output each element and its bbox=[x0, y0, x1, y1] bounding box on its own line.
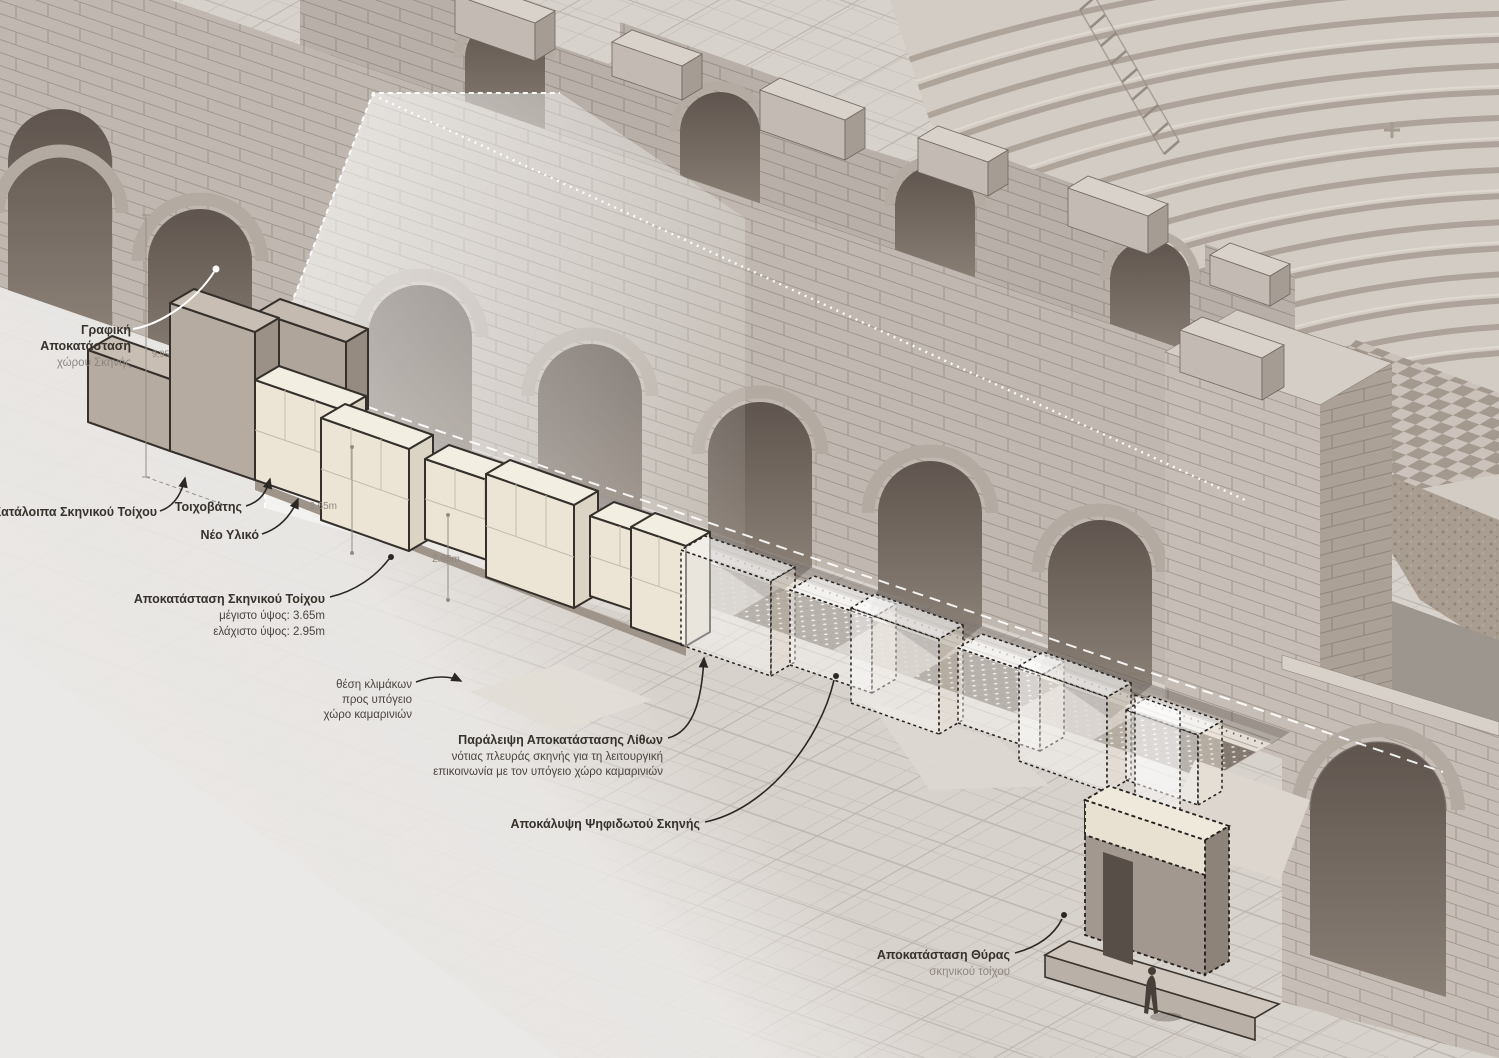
label-omission-line2: νότιας πλευράς σκηνής για τη λειτουργική bbox=[452, 751, 663, 763]
dimension-9-95-label: 9,95 bbox=[152, 349, 170, 359]
restoration-diagram: 9,95 3.65m 2.95m Γραφική Αποκατάσταση χώ… bbox=[0, 0, 1499, 1058]
leader-dot-mosaic bbox=[833, 673, 839, 679]
leader-dot-door bbox=[1061, 912, 1067, 918]
label-remnants: Κατάλοιπα Σκηνικού Τοίχου bbox=[0, 505, 157, 519]
label-graphic-line2: Αποκατάσταση bbox=[40, 339, 131, 353]
label-wall-base: Τοιχοβάτης bbox=[175, 500, 242, 514]
label-stairs-line2: προς υπόγειο bbox=[342, 694, 412, 706]
label-door-line2: σκηνικού τοίχου bbox=[929, 966, 1010, 978]
label-stones-omission: Παράλειψη Αποκατάστασης Λίθων νότιας πλε… bbox=[433, 733, 663, 778]
leader-dot-restoration bbox=[388, 554, 394, 560]
door-arch-opening bbox=[1310, 742, 1446, 997]
label-restoration-min: ελάχιστο ύψος: 2.95m bbox=[213, 626, 325, 638]
label-graphic-line1: Γραφική bbox=[81, 323, 131, 337]
label-omission-line3: επικοινωνία με τον υπόγειο χώρο καμαρινι… bbox=[433, 766, 663, 778]
label-graphic-line3: χώρου Σκηνής bbox=[57, 357, 132, 369]
label-stairs-line3: χώρο καμαρινιών bbox=[323, 709, 412, 721]
label-restoration-max: μέγιστο ύψος: 3.65m bbox=[219, 610, 325, 622]
max-height-label: 3.65m bbox=[309, 501, 337, 512]
door-opening-gap bbox=[1103, 852, 1133, 965]
label-restoration-title: Αποκατάσταση Σκηνικού Τοίχου bbox=[134, 592, 325, 606]
label-mosaic-reveal: Αποκάλυψη Ψηφιδωτού Σκηνής bbox=[511, 817, 700, 831]
return-wall bbox=[1282, 655, 1499, 1058]
min-height-label: 2.95m bbox=[432, 554, 460, 565]
leader-dot-graphic bbox=[213, 266, 220, 273]
label-new-material: Νέο Υλικό bbox=[200, 528, 259, 542]
label-door-title: Αποκατάσταση Θύρας bbox=[877, 948, 1010, 962]
label-omission-title: Παράλειψη Αποκατάστασης Λίθων bbox=[458, 733, 663, 747]
label-stairs-line1: θέση κλιμάκων bbox=[336, 679, 412, 691]
diagram-canvas: 9,95 3.65m 2.95m Γραφική Αποκατάσταση χώ… bbox=[0, 0, 1499, 1058]
